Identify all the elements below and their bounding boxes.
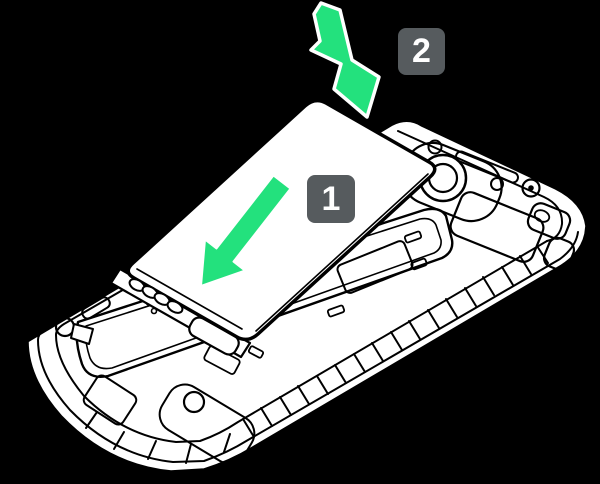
step-1-badge: 1 xyxy=(307,175,355,223)
step-2-label: 2 xyxy=(412,32,431,71)
screw-dot xyxy=(528,185,534,191)
step-1-label: 1 xyxy=(322,180,341,219)
battery-installation-figure: 1 2 xyxy=(0,0,600,484)
figure-canvas xyxy=(0,0,600,484)
step-2-badge: 2 xyxy=(398,28,445,75)
